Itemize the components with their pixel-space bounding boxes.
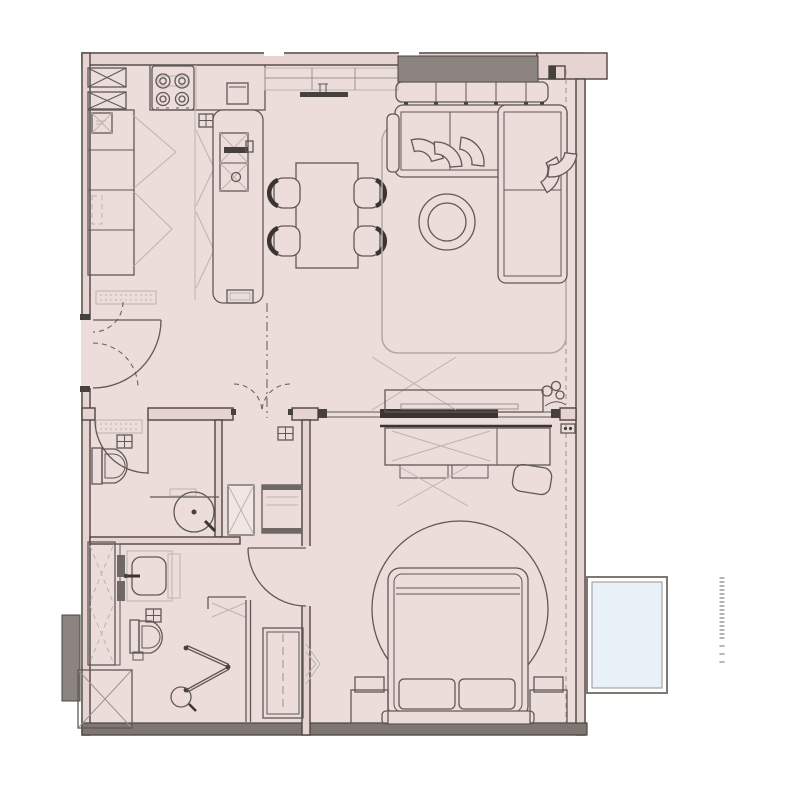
service-shaft — [228, 485, 254, 535]
door-hinge-block — [80, 314, 90, 320]
interior-wall — [90, 537, 240, 544]
dining-chair — [269, 226, 300, 256]
floor-plan-page: One-bedroom apartment floor plan with cu… — [0, 0, 800, 800]
dining-chair — [269, 178, 300, 208]
headboard — [382, 711, 534, 724]
bedroom-door-opening — [301, 546, 311, 606]
glazed-panel — [587, 577, 667, 693]
sliding-door-stop — [318, 409, 327, 418]
door-jamb — [288, 409, 293, 415]
entry-door-opening — [81, 320, 91, 388]
wall-notch-dark — [549, 66, 556, 79]
kitchen-island — [213, 110, 263, 303]
dining-chair — [354, 178, 385, 208]
interior-wall — [292, 408, 318, 420]
towel-rail-icon — [117, 581, 125, 601]
towel-rail-icon — [117, 555, 125, 577]
right-wall — [576, 79, 585, 735]
tv-console — [398, 56, 538, 82]
sliding-door-stop — [551, 409, 560, 418]
left-wall — [82, 53, 90, 735]
interior-wall — [215, 420, 222, 537]
top-wall-gap-2 — [399, 50, 419, 56]
interior-wall — [82, 408, 95, 420]
glass-panel — [592, 582, 662, 688]
faucet-icon — [224, 147, 248, 153]
exterior-pier — [62, 615, 80, 701]
interior-wall — [560, 408, 576, 420]
sliding-door-panel — [380, 409, 498, 418]
bottom-wall — [82, 723, 587, 735]
double-bed — [382, 568, 534, 724]
door-hinge-block — [80, 386, 90, 392]
top-right-wall-band — [537, 53, 607, 79]
wall-shelf-icon — [300, 92, 348, 97]
floor-plan-canvas: One-bedroom apartment floor plan with cu… — [0, 0, 800, 800]
top-wall-gap-1 — [264, 50, 284, 56]
sofa-armrest — [387, 114, 399, 172]
interior-wall — [148, 408, 233, 420]
dining-chair — [354, 226, 385, 256]
railing-hatch-icon — [720, 578, 725, 662]
door-jamb — [231, 409, 236, 415]
